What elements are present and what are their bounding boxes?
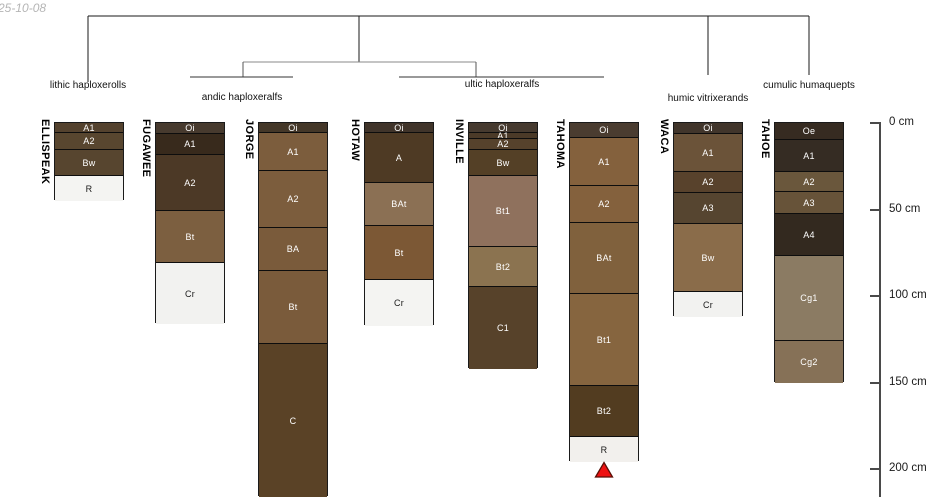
horizon-WACA-Cr: Cr: [674, 291, 742, 317]
horizon-FUGAWEE-A2: A2: [156, 154, 224, 210]
horizon-INVILLE-Bt2: Bt2: [469, 246, 537, 286]
depth-tick: [870, 468, 879, 470]
group-label-ultic-haploxeralfs: ultic haploxeralfs: [465, 79, 539, 90]
horizon-INVILLE-Bw: Bw: [469, 149, 537, 175]
group-label-andic-haploxeralfs: andic haploxeralfs: [202, 92, 283, 103]
depth-tick: [870, 295, 879, 297]
horizon-HOTAW-BAt: BAt: [365, 182, 433, 225]
horizon-TAHOMA-Bt2: Bt2: [570, 385, 638, 436]
horizon-HOTAW-Oi: Oi: [365, 123, 433, 132]
horizon-INVILLE-A2: A2: [469, 138, 537, 149]
horizon-FUGAWEE-Oi: Oi: [156, 123, 224, 133]
depth-tick: [870, 209, 879, 211]
profile-column-FUGAWEE: OiA1A2BtCr: [155, 122, 225, 323]
depth-tick-label: 200 cm: [889, 462, 927, 474]
horizon-WACA-Bw: Bw: [674, 223, 742, 291]
horizon-HOTAW-Cr: Cr: [365, 279, 433, 326]
profile-column-JORGE: OiA1A2BABtC: [258, 122, 328, 496]
horizon-TAHOMA-A1: A1: [570, 137, 638, 185]
horizon-TAHOMA-BAt: BAt: [570, 222, 638, 293]
horizon-JORGE-A2: A2: [259, 170, 327, 227]
profile-id-label-HOTAW: HOTAW: [348, 119, 361, 161]
horizon-WACA-A3: A3: [674, 192, 742, 223]
dendrogram: [0, 0, 950, 112]
horizon-INVILLE-Bt1: Bt1: [469, 175, 537, 246]
profile-column-INVILLE: OiA1A2BwBt1Bt2C1: [468, 122, 538, 368]
horizon-TAHOMA-Bt1: Bt1: [570, 293, 638, 385]
depth-tick-label: 0 cm: [889, 116, 914, 128]
horizon-WACA-A1: A1: [674, 133, 742, 171]
horizon-WACA-Oi: Oi: [674, 123, 742, 133]
profile-column-TAHOMA: OiA1A2BAtBt1Bt2R: [569, 122, 639, 461]
horizon-ELLISPEAK-A2: A2: [55, 132, 123, 149]
horizon-JORGE-C: C: [259, 343, 327, 497]
horizon-FUGAWEE-Cr: Cr: [156, 262, 224, 324]
depth-tick: [870, 122, 879, 124]
horizon-HOTAW-Bt: Bt: [365, 225, 433, 279]
horizon-ELLISPEAK-R: R: [55, 175, 123, 201]
horizon-JORGE-A1: A1: [259, 132, 327, 170]
horizon-TAHOE-Cg1: Cg1: [775, 255, 843, 340]
red-triangle-marker: [594, 461, 614, 479]
profile-column-HOTAW: OiABAtBtCr: [364, 122, 434, 325]
horizon-TAHOE-Cg2: Cg2: [775, 340, 843, 383]
horizon-TAHOE-A2: A2: [775, 171, 843, 191]
profile-id-label-INVILLE: INVILLE: [452, 119, 465, 164]
horizon-HOTAW-A: A: [365, 132, 433, 182]
depth-tick-label: 150 cm: [889, 376, 927, 388]
horizon-TAHOE-A4: A4: [775, 213, 843, 255]
horizon-JORGE-BA: BA: [259, 227, 327, 270]
horizon-JORGE-Bt: Bt: [259, 270, 327, 343]
horizon-WACA-A2: A2: [674, 171, 742, 192]
horizon-ELLISPEAK-Bw: Bw: [55, 149, 123, 175]
horizon-ELLISPEAK-A1: A1: [55, 123, 123, 132]
profile-column-TAHOE: OeA1A2A3A4Cg1Cg2: [774, 122, 844, 382]
group-label-cumulic-humaquepts: cumulic humaquepts: [763, 80, 855, 91]
horizon-TAHOMA-R: R: [570, 436, 638, 462]
profile-id-label-TAHOE: TAHOE: [758, 119, 771, 159]
horizon-TAHOE-A3: A3: [775, 191, 843, 213]
profile-column-ELLISPEAK: A1A2BwR: [54, 122, 124, 200]
horizon-TAHOE-Oe: Oe: [775, 123, 843, 139]
profile-id-label-WACA: WACA: [657, 119, 670, 154]
horizon-INVILLE-C1: C1: [469, 286, 537, 369]
horizon-FUGAWEE-A1: A1: [156, 133, 224, 154]
horizon-TAHOMA-Oi: Oi: [570, 123, 638, 137]
profile-id-label-ELLISPEAK: ELLISPEAK: [38, 119, 51, 184]
horizon-TAHOE-A1: A1: [775, 139, 843, 171]
depth-tick-label: 100 cm: [889, 289, 927, 301]
profile-id-label-TAHOMA: TAHOMA: [553, 119, 566, 169]
horizon-TAHOMA-A2: A2: [570, 185, 638, 222]
horizon-JORGE-Oi: Oi: [259, 123, 327, 132]
soil-profile-chart: 25-10-08 lithic haploxerollsandic haplox…: [0, 0, 950, 500]
depth-tick-label: 50 cm: [889, 203, 920, 215]
horizon-FUGAWEE-Bt: Bt: [156, 210, 224, 262]
depth-tick: [870, 382, 879, 384]
group-label-lithic-haploxerolls: lithic haploxerolls: [50, 80, 126, 91]
depth-axis-line: [879, 122, 881, 497]
profile-id-label-FUGAWEE: FUGAWEE: [139, 119, 152, 177]
group-label-humic-vitrixerands: humic vitrixerands: [668, 93, 749, 104]
profile-id-label-JORGE: JORGE: [242, 119, 255, 160]
profile-column-WACA: OiA1A2A3BwCr: [673, 122, 743, 316]
